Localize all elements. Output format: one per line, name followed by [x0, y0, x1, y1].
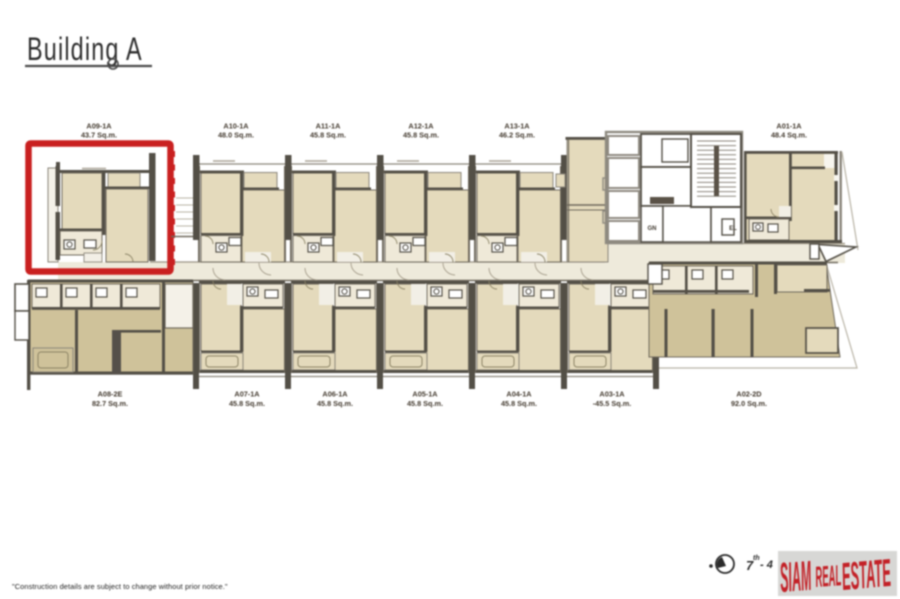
svg-text:45.8 Sq.m.: 45.8 Sq.m. — [310, 131, 346, 140]
svg-text:A09-1A: A09-1A — [86, 122, 112, 131]
svg-text:48.4 Sq.m.: 48.4 Sq.m. — [771, 131, 807, 140]
svg-text:A01-1A: A01-1A — [776, 122, 802, 131]
svg-text:A08-2E: A08-2E — [98, 390, 123, 399]
svg-text:ESTATE: ESTATE — [840, 552, 893, 599]
svg-text:EL: EL — [729, 226, 737, 232]
svg-text:45.8 Sq.m.: 45.8 Sq.m. — [403, 131, 439, 140]
svg-text:- 4: - 4 — [760, 559, 773, 571]
svg-text:-45.5 Sq.m.: -45.5 Sq.m. — [593, 399, 632, 408]
svg-text:A12-1A: A12-1A — [408, 122, 434, 131]
svg-text:A04-1A: A04-1A — [506, 390, 532, 399]
svg-text:Building A: Building A — [27, 30, 143, 67]
svg-text:A03-1A: A03-1A — [599, 390, 625, 399]
svg-text:82.7 Sq.m.: 82.7 Sq.m. — [92, 399, 128, 408]
svg-text:th: th — [753, 555, 760, 562]
svg-text:45.8 Sq.m.: 45.8 Sq.m. — [317, 399, 353, 408]
svg-text:GN: GN — [648, 226, 657, 232]
svg-text:A02-2D: A02-2D — [736, 390, 761, 399]
svg-text:43.7 Sq.m.: 43.7 Sq.m. — [81, 131, 117, 140]
svg-text:46.2 Sq.m.: 46.2 Sq.m. — [499, 131, 535, 140]
svg-text:45.8 Sq.m.: 45.8 Sq.m. — [407, 399, 443, 408]
svg-text:A07-1A: A07-1A — [234, 390, 260, 399]
svg-text:A05-1A: A05-1A — [412, 390, 438, 399]
svg-text:SIAM: SIAM — [778, 552, 813, 599]
svg-text:45.8 Sq.m.: 45.8 Sq.m. — [229, 399, 265, 408]
svg-text:A11-1A: A11-1A — [316, 122, 341, 131]
svg-text:48.0 Sq.m.: 48.0 Sq.m. — [218, 131, 254, 140]
svg-text:A10-1A: A10-1A — [223, 122, 249, 131]
svg-text:45.8 Sq.m.: 45.8 Sq.m. — [501, 399, 537, 408]
svg-text:A13-1A: A13-1A — [504, 122, 530, 131]
svg-text:A06-1A: A06-1A — [322, 390, 348, 399]
svg-text:REAL: REAL — [814, 558, 842, 593]
svg-text:"Construction details are subj: "Construction details are subject to cha… — [12, 582, 228, 591]
svg-text:92.0 Sq.m.: 92.0 Sq.m. — [731, 399, 767, 408]
